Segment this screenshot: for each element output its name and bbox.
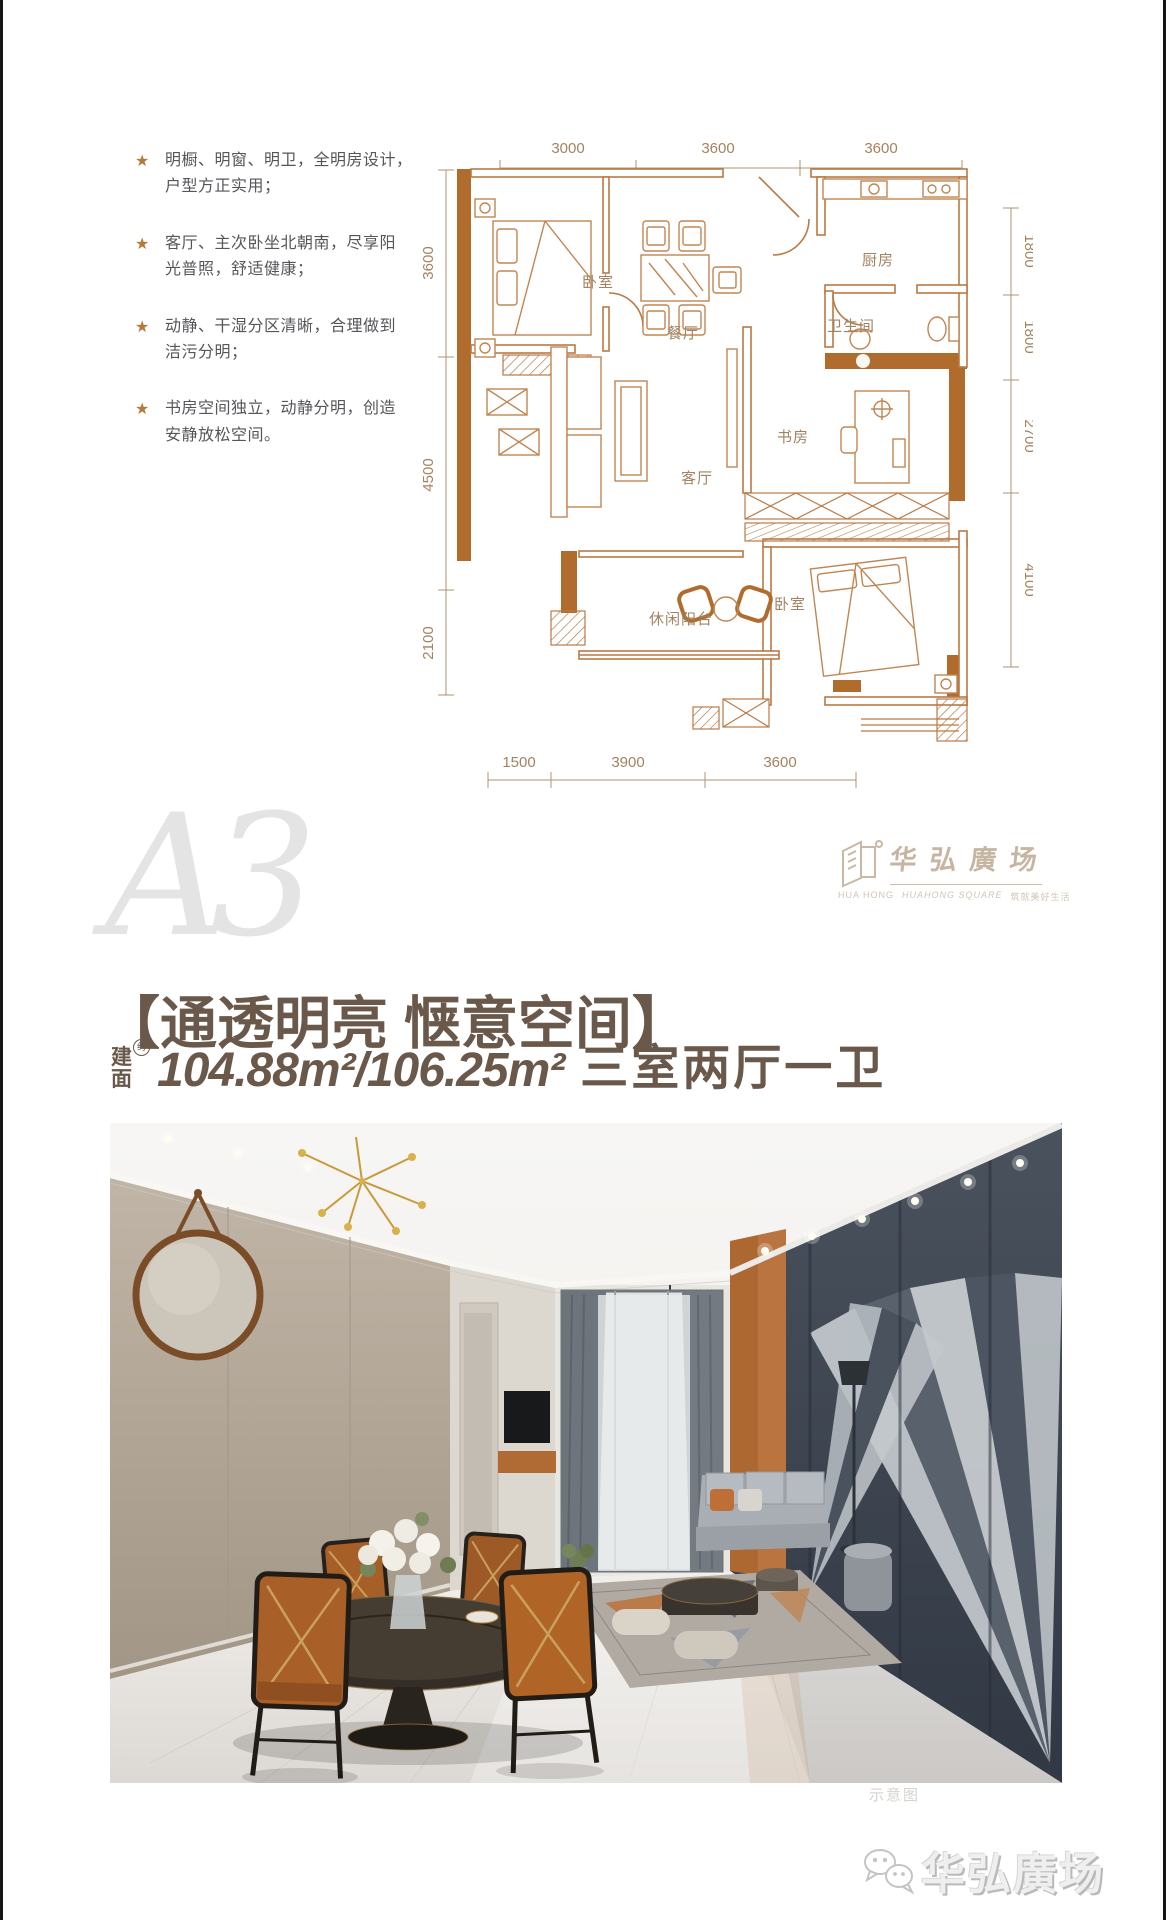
unit-watermark: A3 [105, 792, 301, 960]
dim-label: 2700 [1021, 419, 1033, 452]
dim-label: 3600 [420, 246, 437, 279]
floor-plan: 3000 3600 3600 3600 4500 2100 1800 1800 … [393, 95, 1033, 805]
room-count-text: 三室两厅一卫 [580, 1028, 886, 1098]
room-label-dining: 餐厅 [667, 325, 699, 342]
dim-label: 1800 [1021, 320, 1033, 353]
room-label-living: 客厅 [681, 470, 713, 487]
feature-text: 户型方正实用； [165, 178, 281, 195]
brand-sub-left: HUA HONG [838, 890, 894, 903]
room-label-bath: 卫生间 [827, 318, 875, 335]
area-line: 建 面 约 104.88m²/106.25m² 三室两厅一卫 [111, 1028, 886, 1098]
dim-label: 2100 [420, 626, 437, 659]
star-icon: ★ [135, 315, 150, 341]
dim-label: 3600 [763, 754, 796, 771]
area-label-bottom: 面 [111, 1068, 132, 1091]
brand-sub-right: 筑就美好生活 [1011, 890, 1071, 903]
feature-text: 动静、干湿分区清晰，合理做到 [165, 318, 396, 335]
area-label-top: 建 [111, 1046, 132, 1069]
feature-text: 客厅、主次卧坐北朝南，尽享阳 [165, 235, 396, 252]
dim-label: 3900 [611, 754, 644, 771]
dim-label: 4500 [420, 458, 437, 491]
feature-text: 安静放松空间。 [165, 427, 281, 444]
room-label-kitchen: 厨房 [862, 252, 894, 269]
feature-text: 洁污分明； [165, 344, 248, 361]
dim-label: 3000 [551, 140, 584, 157]
area-approx-badge: 约 [133, 1039, 150, 1056]
star-icon: ★ [135, 232, 150, 258]
poster-page: ★ 明橱、明窗、明卫，全明房设计， 户型方正实用； ★ 客厅、主次卧坐北朝南，尽… [0, 0, 1166, 1920]
dim-label: 1800 [1021, 234, 1033, 267]
room-label-bedroom2: 卧室 [774, 596, 806, 613]
star-icon: ★ [135, 397, 150, 423]
dim-label: 1500 [502, 754, 535, 771]
dim-label: 4100 [1021, 563, 1033, 596]
brand-sub-mid: HUAHONG SQUARE [902, 890, 1003, 903]
interior-photo [110, 1123, 1062, 1783]
brand-building-icon [836, 836, 884, 888]
area-value: 104.88m²/106.25m² [157, 1043, 564, 1098]
photo-watermark: 示意图 [869, 1784, 920, 1805]
room-label-study: 书房 [777, 429, 809, 446]
tv-screen [504, 1391, 550, 1443]
star-icon: ★ [135, 149, 150, 175]
feature-text: 光普照，舒适健康； [165, 261, 314, 278]
wechat-icon [859, 1843, 917, 1897]
room-label-balcony: 休闲阳台 [649, 611, 713, 628]
room-label-bedroom1: 卧室 [582, 274, 614, 291]
dim-label: 3600 [701, 140, 734, 157]
orange-console [498, 1451, 556, 1473]
footer-brand-name: 华弘廣场 [921, 1838, 1105, 1902]
area-label: 建 面 约 [111, 1047, 141, 1092]
dim-label: 3600 [864, 140, 897, 157]
brand-rule [890, 884, 1042, 885]
feature-text: 明橱、明窗、明卫，全明房设计， [165, 152, 413, 169]
brand-name: 华弘廣场 [888, 838, 1052, 877]
footer-brand: 华弘廣场 [859, 1838, 1105, 1902]
feature-text: 书房空间独立，动静分明，创造 [165, 400, 396, 417]
brand-logo: 华弘廣场 HUA HONG HUAHONG SQUARE 筑就美好生活 [836, 836, 1086, 889]
